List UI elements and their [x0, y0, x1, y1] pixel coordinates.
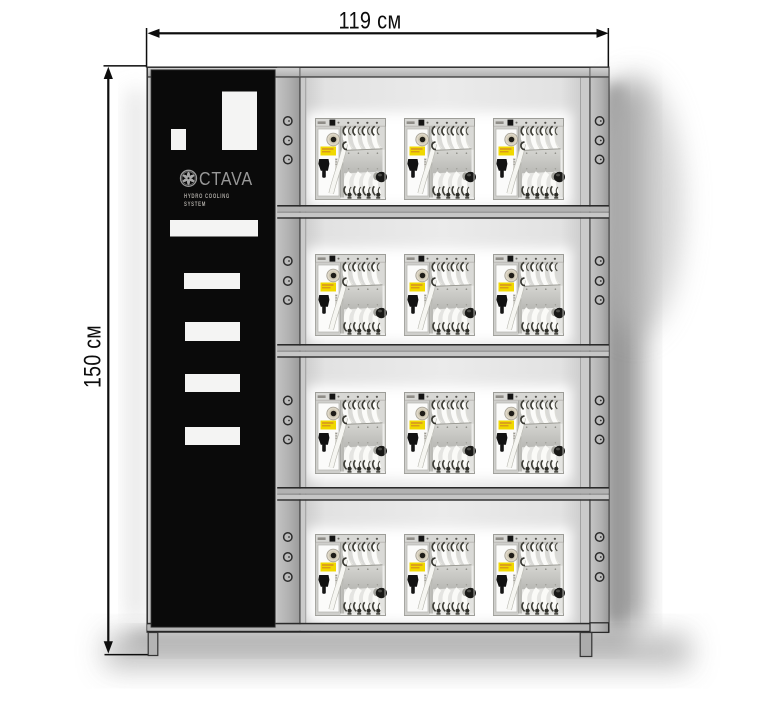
svg-text:SYSTEM: SYSTEM [184, 201, 206, 208]
svg-text:HYDRO COOLING: HYDRO COOLING [184, 193, 230, 200]
svg-text:150 см: 150 см [80, 325, 107, 388]
svg-text:CTAVA: CTAVA [199, 168, 253, 189]
svg-text:119 см: 119 см [339, 8, 402, 35]
